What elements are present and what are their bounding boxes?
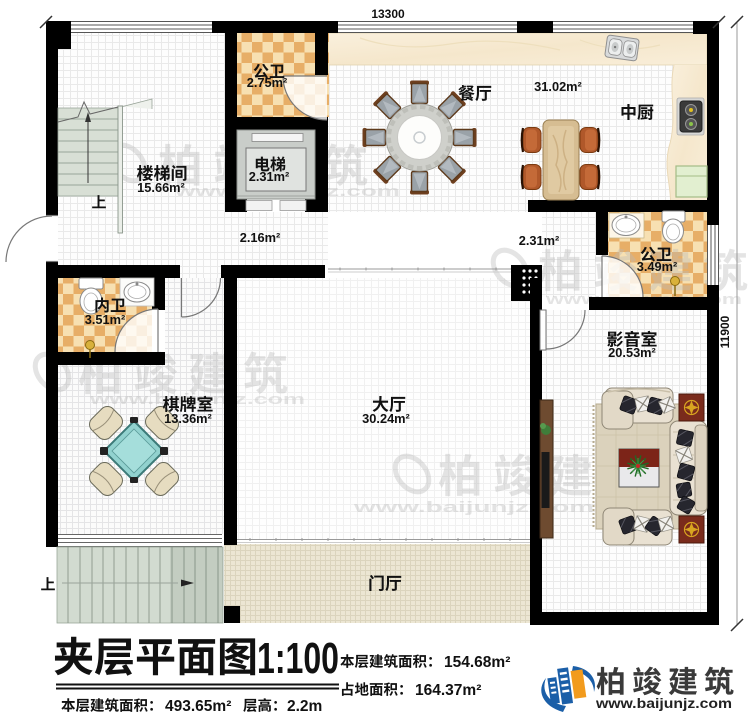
svg-text:30.24m²: 30.24m² [362,411,410,426]
svg-text:2.16m²: 2.16m² [240,230,281,245]
svg-text:493.65m²: 493.65m² [165,698,231,715]
svg-text:154.68m²: 154.68m² [444,654,510,671]
svg-text:11900: 11900 [718,315,732,348]
svg-text:164.37m²: 164.37m² [415,682,481,699]
svg-text:13.36m²: 13.36m² [164,411,212,426]
svg-text:15.66m²: 15.66m² [137,180,185,195]
svg-text:www.baijunjz.com: www.baijunjz.com [352,499,594,516]
svg-text:2.31m²: 2.31m² [249,169,290,184]
svg-text:3.49m²: 3.49m² [637,259,678,274]
svg-text:2.75m²: 2.75m² [247,75,288,90]
svg-text:3.51m²: 3.51m² [85,312,126,327]
svg-text:www.baijunjz.com: www.baijunjz.com [88,391,305,408]
svg-text:www.baijunjz.com: www.baijunjz.com [595,695,732,711]
svg-text:2.2m: 2.2m [287,698,322,715]
svg-text:1:100: 1:100 [257,634,339,683]
svg-text:20.53m²: 20.53m² [608,345,656,360]
svg-text:13300: 13300 [371,7,405,21]
svg-text:31.02m²: 31.02m² [534,79,582,94]
svg-text:2.31m²: 2.31m² [519,233,560,248]
